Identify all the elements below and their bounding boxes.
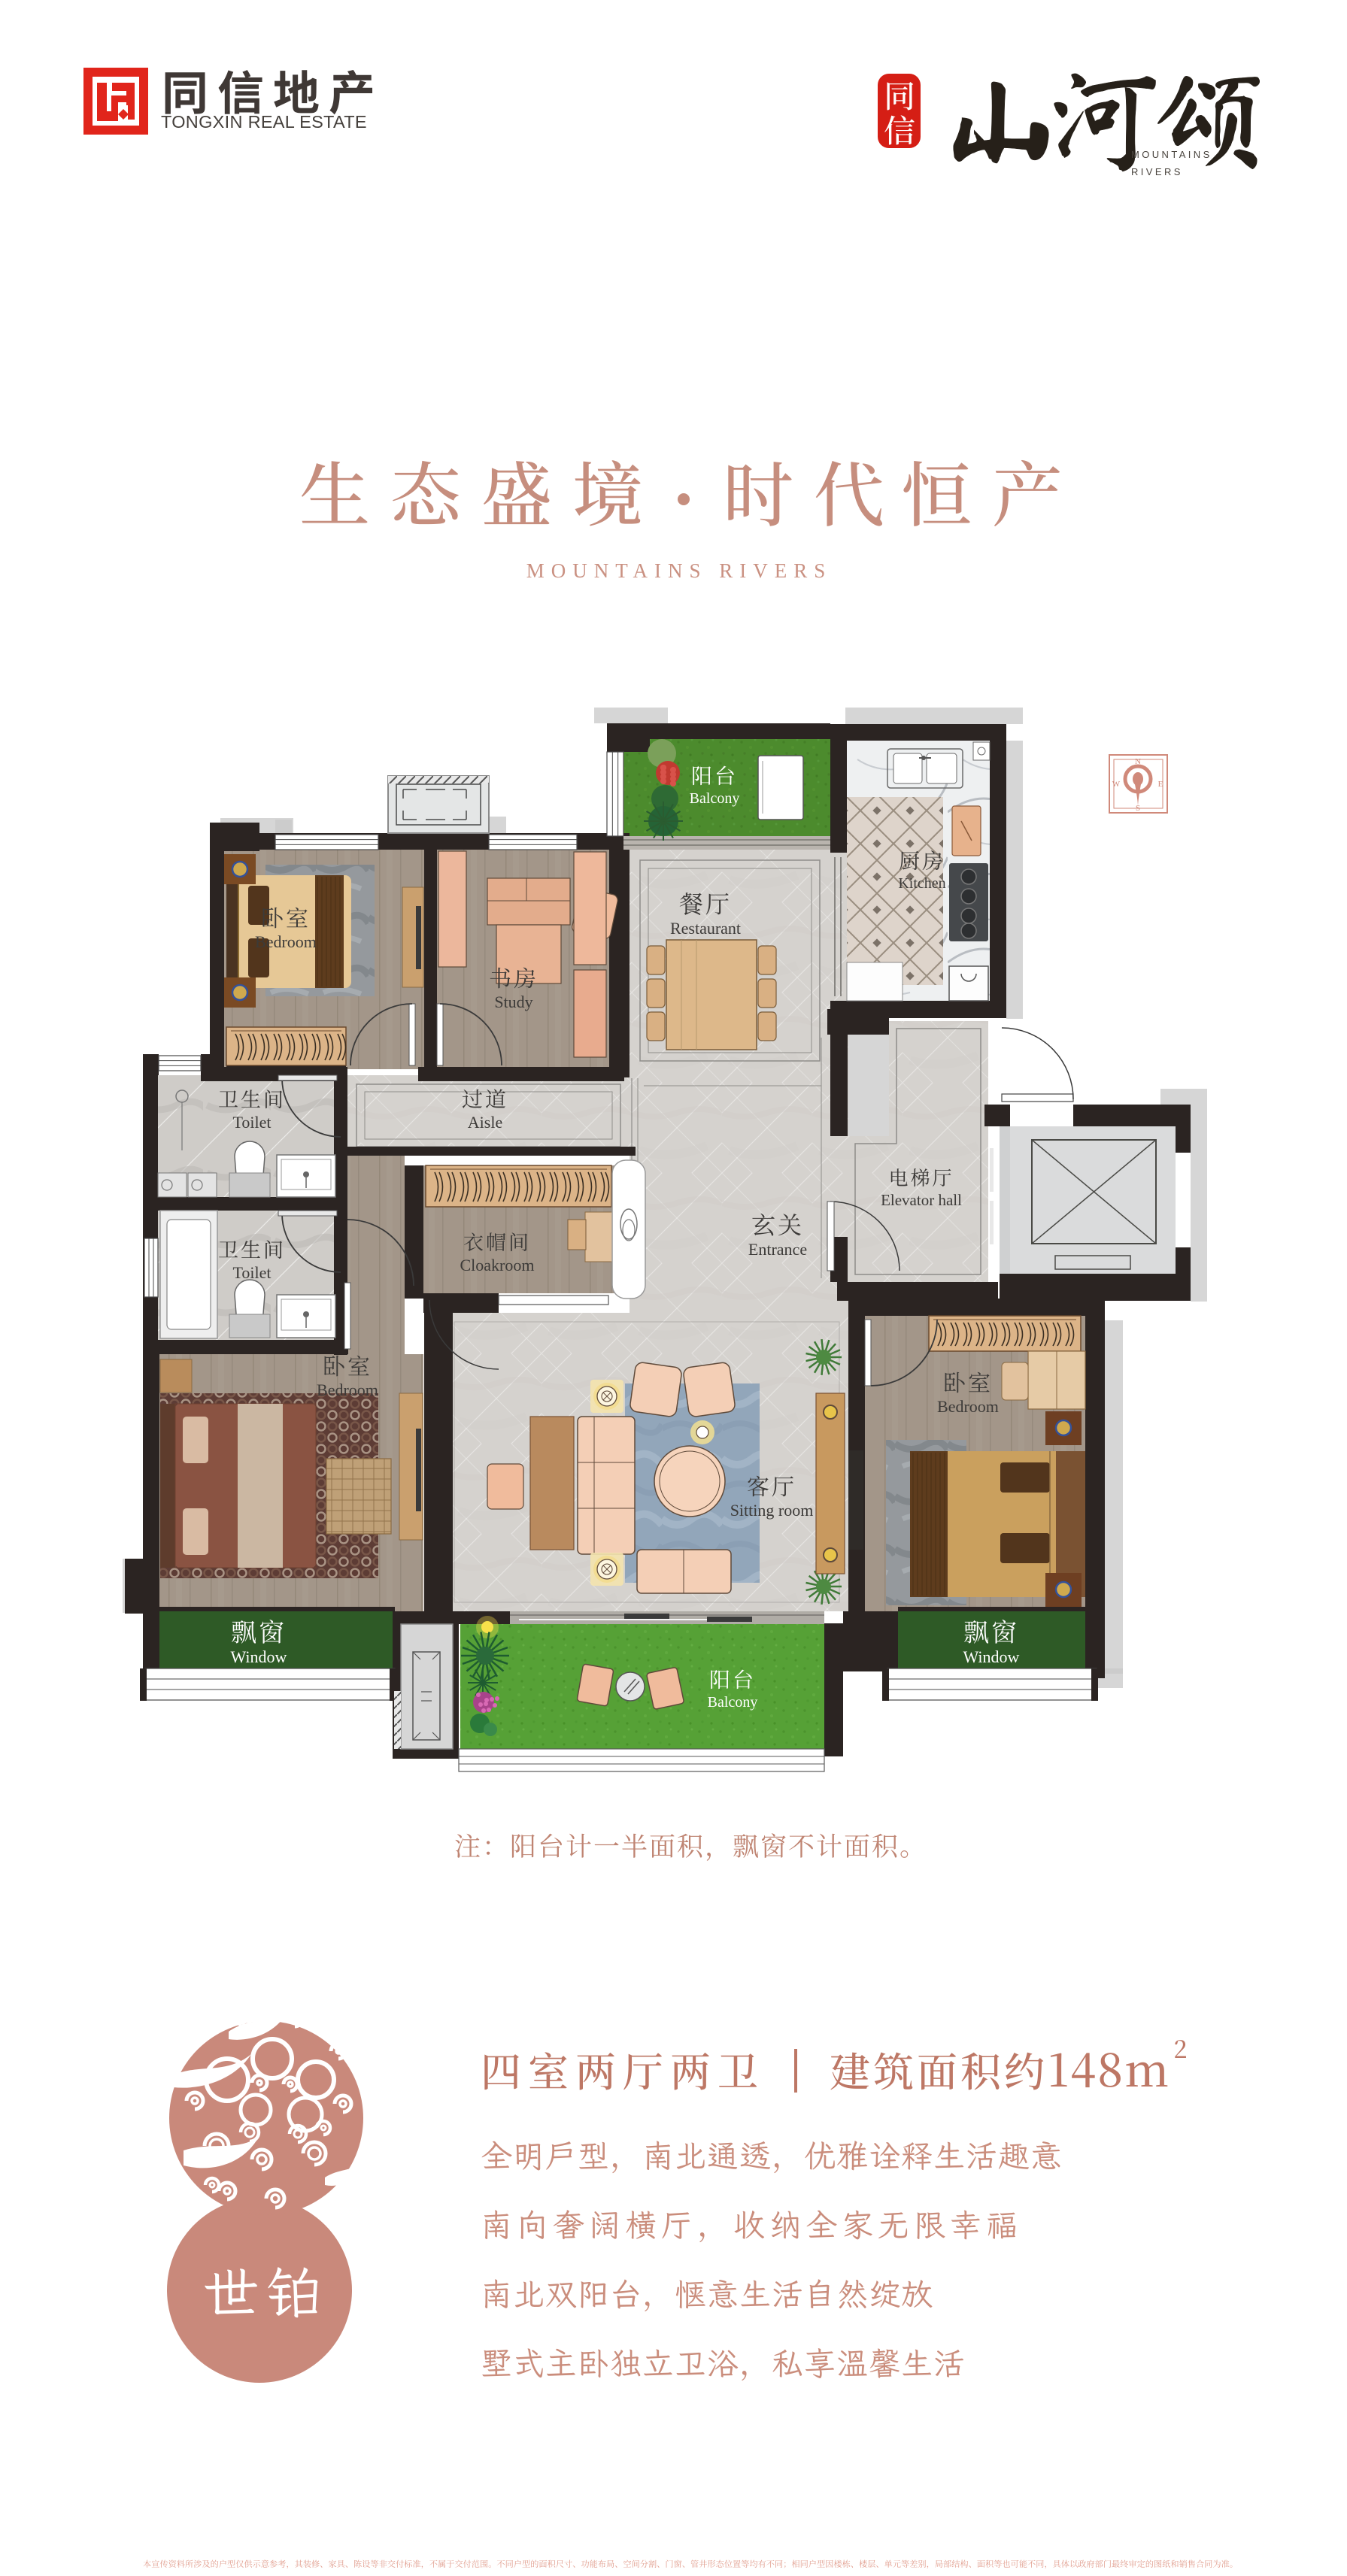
svg-text:Elevator hall: Elevator hall xyxy=(881,1191,962,1209)
svg-text:Entrance: Entrance xyxy=(748,1240,807,1259)
svg-text:Bedroom: Bedroom xyxy=(255,932,317,951)
svg-text:Aisle: Aisle xyxy=(468,1113,502,1132)
svg-text:Toilet: Toilet xyxy=(232,1263,271,1282)
svg-text:Cloakroom: Cloakroom xyxy=(460,1256,535,1274)
svg-text:Window: Window xyxy=(963,1647,1020,1666)
svg-text:RIVERS: RIVERS xyxy=(1131,166,1183,177)
svg-text:Sitting room: Sitting room xyxy=(730,1501,814,1520)
svg-text:E: E xyxy=(1158,780,1163,789)
svg-text:N: N xyxy=(1135,757,1141,766)
svg-text:Window: Window xyxy=(231,1647,287,1666)
svg-text:Bedroom: Bedroom xyxy=(317,1380,378,1399)
svg-text:MOUNTAINS: MOUNTAINS xyxy=(1131,149,1212,160)
svg-text:Kitchen: Kitchen xyxy=(898,875,945,892)
svg-text:S: S xyxy=(1136,804,1140,813)
svg-text:Toilet: Toilet xyxy=(232,1113,271,1132)
svg-text:Restaurant: Restaurant xyxy=(670,919,741,938)
svg-text:W: W xyxy=(1112,780,1121,789)
svg-text:Balcony: Balcony xyxy=(690,790,740,807)
svg-text:Study: Study xyxy=(494,993,532,1011)
svg-text:MOUNTAINS RIVERS: MOUNTAINS RIVERS xyxy=(526,559,833,582)
svg-text:Bedroom: Bedroom xyxy=(937,1397,999,1416)
svg-text:Balcony: Balcony xyxy=(708,1694,758,1711)
svg-text:TONGXIN REAL ESTATE: TONGXIN REAL ESTATE xyxy=(161,112,367,132)
